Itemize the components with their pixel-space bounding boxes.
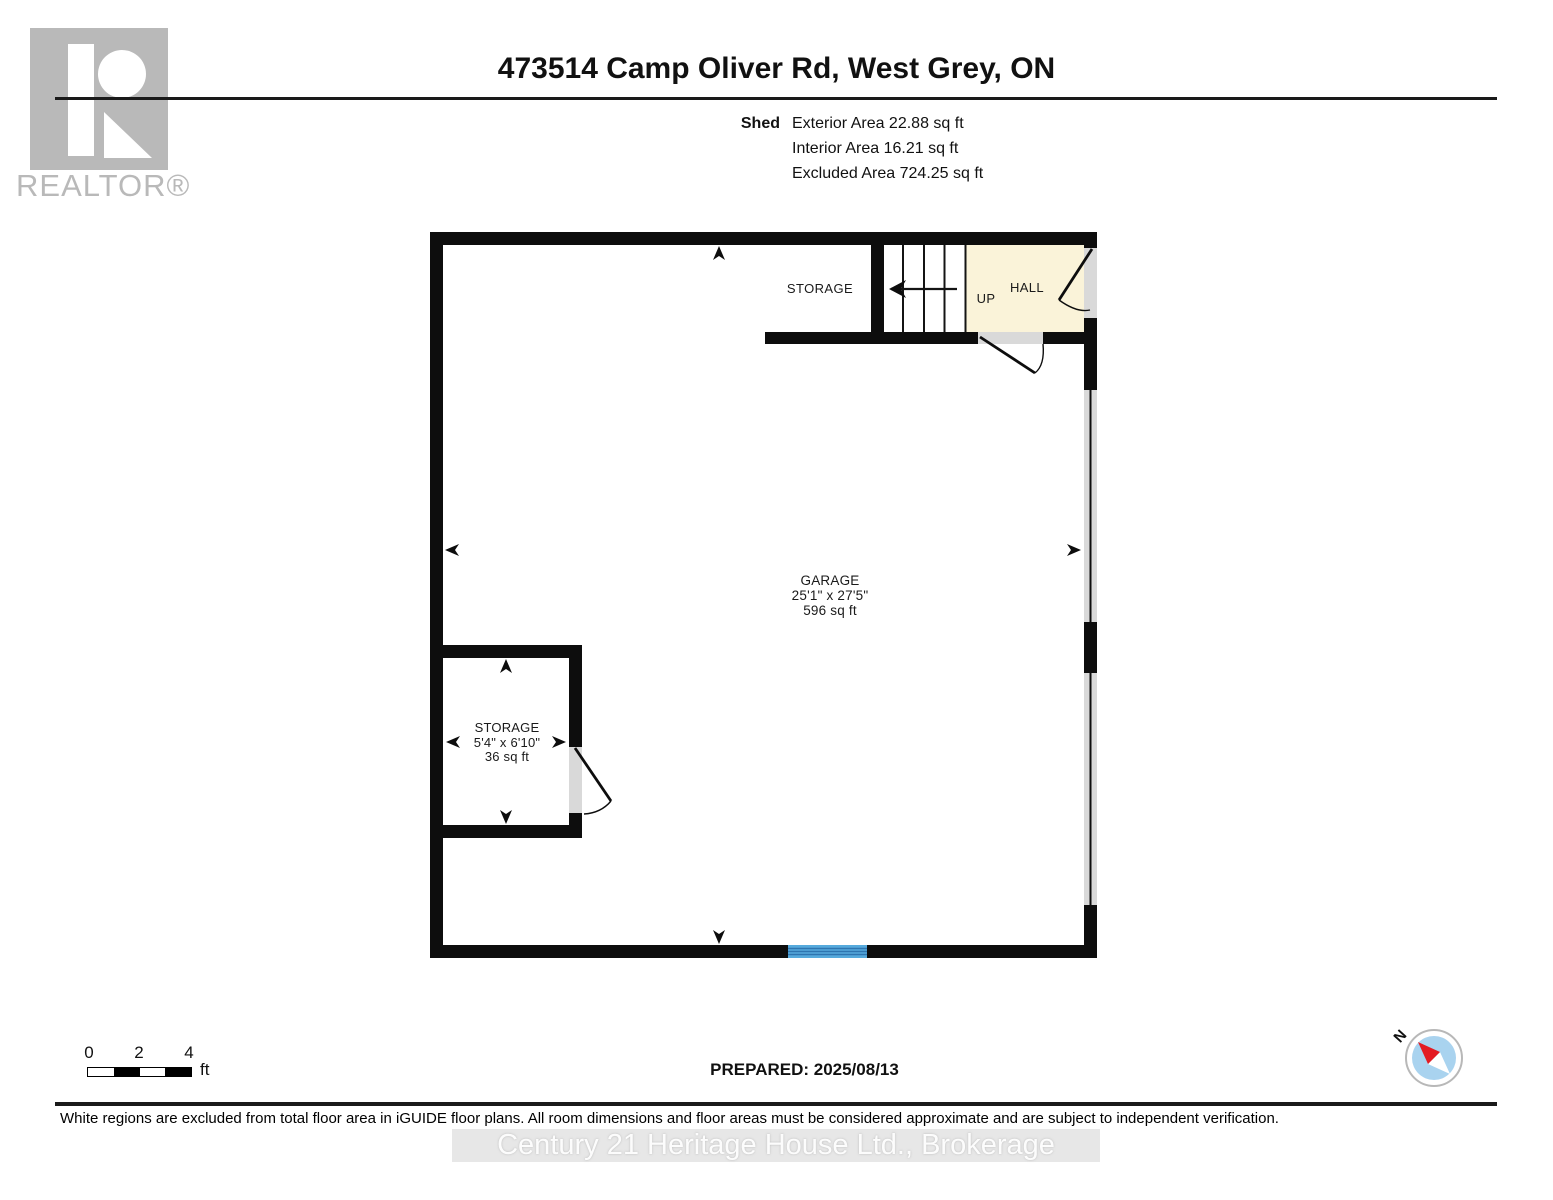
area-summary: Exterior Area 22.88 sq ft Interior Area … (792, 111, 983, 186)
prepared-date-label: PREPARED: 2025/08/13 (697, 1060, 912, 1080)
garage-dim-arrow-up-icon (713, 246, 725, 260)
header-divider (55, 97, 1497, 100)
footer-divider (55, 1102, 1497, 1106)
floor-name-label: Shed (600, 111, 780, 136)
small-storage-right-wall-upper (569, 645, 582, 747)
room-label-storage-top: STORAGE (770, 281, 870, 296)
disclaimer-text: White regions are excluded from total fl… (60, 1110, 1360, 1127)
garage-name: GARAGE (755, 573, 905, 588)
realtor-logo-label: REALTOR® (16, 168, 206, 204)
excluded-area-row: Excluded Area 724.25 sq ft (792, 161, 983, 186)
scale-tick-2: 2 (131, 1043, 147, 1063)
interior-area-row: Interior Area 16.21 sq ft (792, 136, 983, 161)
upper-strip-wall-right (1043, 332, 1097, 344)
room-label-storage-small: STORAGE 5'4" x 6'10" 36 sq ft (445, 721, 569, 765)
garage-dim-arrow-right-icon (1067, 544, 1081, 556)
upper-strip-wall-left (765, 332, 978, 344)
garage-area: 596 sq ft (755, 603, 905, 618)
right-wall-window-upper (1084, 390, 1097, 622)
left-wall (430, 232, 443, 958)
garage-overhead-door (788, 945, 867, 958)
right-wall-seg-2 (1084, 318, 1097, 390)
scale-unit-label: ft (200, 1060, 209, 1080)
bottom-wall (430, 945, 1097, 958)
garage-dimensions: 25'1" x 27'5" (755, 588, 905, 603)
storage-small-dimensions: 5'4" x 6'10" (445, 736, 569, 751)
small-storage-top-wall (430, 645, 582, 658)
small-storage-bottom-wall (430, 825, 582, 838)
right-wall-window-lower (1084, 673, 1097, 905)
scale-tick-0: 0 (81, 1043, 97, 1063)
right-wall-seg-bottom (1084, 905, 1097, 958)
stair-side-wall (871, 232, 884, 344)
right-wall-seg-top (1084, 232, 1097, 248)
room-label-garage: GARAGE 25'1" x 27'5" 596 sq ft (755, 573, 905, 618)
top-wall (430, 232, 1097, 245)
small-storage-right-wall-lower (569, 813, 582, 838)
storage-small-area: 36 sq ft (445, 750, 569, 765)
storage-small-name: STORAGE (445, 721, 569, 736)
staircase (889, 245, 966, 332)
right-wall-seg-3 (1084, 622, 1097, 673)
page-title: 473514 Camp Oliver Rd, West Grey, ON (0, 52, 1553, 86)
stairs-up-label: UP (966, 291, 1006, 306)
scale-bar (87, 1067, 192, 1077)
garage-dim-arrow-left-icon (445, 544, 459, 556)
storage-dim-arrow-down-icon (500, 810, 512, 824)
exterior-area-row: Exterior Area 22.88 sq ft (792, 111, 983, 136)
brokerage-watermark: Century 21 Heritage House Ltd., Brokerag… (452, 1129, 1100, 1162)
scale-tick-4: 4 (181, 1043, 197, 1063)
garage-dim-arrow-down-icon (713, 930, 725, 944)
storage-dim-arrow-up-icon (500, 659, 512, 673)
